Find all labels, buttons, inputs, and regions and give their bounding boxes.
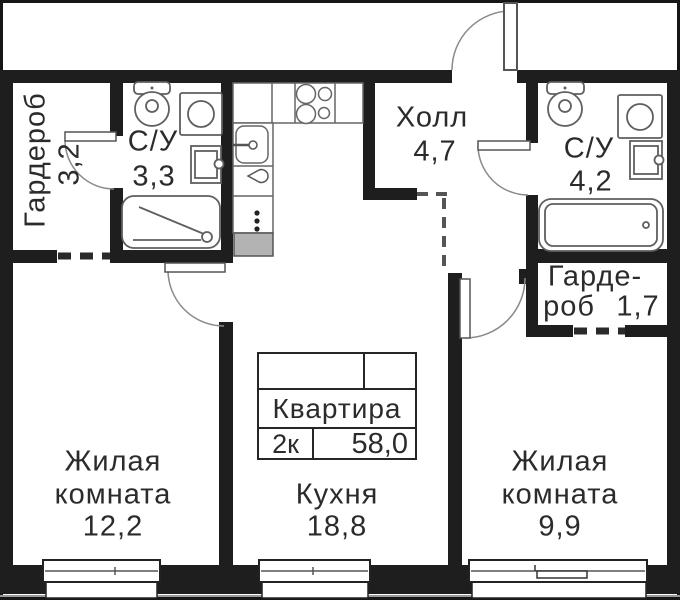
wall-hall-left bbox=[363, 83, 375, 188]
sink-icon bbox=[630, 141, 664, 179]
door-swing-arc bbox=[452, 11, 511, 70]
room-area-bathroom-right: 4,2 bbox=[569, 168, 612, 197]
toilet-icon bbox=[547, 82, 584, 126]
stamp-header-divider bbox=[363, 354, 365, 388]
wall-bath-right-lower bbox=[526, 195, 538, 337]
room-area-living1: 12,2 bbox=[83, 513, 143, 542]
wall-wardrobe-right-bottom-r bbox=[625, 325, 667, 337]
door-swing-arc bbox=[478, 145, 528, 195]
appliance-dots-icon bbox=[254, 210, 259, 231]
wall-wardrobe-left-stub bbox=[13, 250, 57, 263]
room-area-kitchen: 18,8 bbox=[307, 513, 367, 542]
door-leaf bbox=[460, 279, 470, 338]
sink-icon bbox=[191, 146, 224, 183]
toilet-icon bbox=[134, 82, 170, 126]
wall-kitchen-living1 bbox=[219, 322, 233, 565]
living1-door bbox=[165, 263, 225, 326]
wall-door-frame-stub bbox=[519, 269, 538, 284]
window-living1 bbox=[43, 560, 160, 598]
wall-top-right bbox=[517, 70, 680, 83]
room-name-living1-line1: Жилая bbox=[65, 448, 162, 477]
wall-left bbox=[0, 70, 13, 594]
room-name-hall: Холл bbox=[396, 104, 468, 133]
wall-wardrobe-bath-upper bbox=[110, 83, 123, 136]
door-leaf bbox=[504, 3, 517, 70]
room-name-bathroom-left: С/У bbox=[128, 128, 178, 157]
bathtub-icon bbox=[122, 196, 220, 248]
wall-bath-right-upper bbox=[526, 83, 538, 143]
room-name-bathroom-right: С/У bbox=[564, 135, 614, 164]
room-name-wardrobe-right-line1: Гарде- bbox=[548, 263, 642, 292]
door-leaf bbox=[65, 132, 116, 141]
room-area-living2: 9,9 bbox=[538, 513, 581, 542]
room-name-living1-line2: комната bbox=[55, 481, 172, 510]
stamp-values-row: 2к 58,0 bbox=[259, 429, 415, 460]
kitchen-sink-icon bbox=[233, 126, 268, 163]
wall-top-left bbox=[0, 70, 452, 83]
door-leaf bbox=[478, 141, 530, 150]
door-leaf bbox=[165, 263, 225, 272]
room-name-wardrobe-left: Гардероб bbox=[22, 92, 51, 228]
apartment-stamp: Квартира 2к 58,0 bbox=[257, 352, 417, 460]
room-area-bathroom-left: 3,3 bbox=[132, 163, 175, 192]
wall-wardrobe-bath-lower bbox=[110, 188, 123, 250]
window-kitchen bbox=[259, 560, 370, 598]
stamp-total-area: 58,0 bbox=[314, 429, 415, 460]
room-name-kitchen: Кухня bbox=[296, 481, 379, 510]
washing-machine-icon bbox=[180, 93, 222, 135]
bathroom-right-door bbox=[478, 141, 530, 195]
door-swing-arc bbox=[465, 278, 525, 338]
room-name-living2-line2: комната bbox=[502, 481, 619, 510]
stamp-room-count: 2к bbox=[259, 429, 314, 460]
windows bbox=[43, 560, 647, 598]
room-area-wardrobe-left: 3,2 bbox=[56, 142, 85, 185]
stamp-title: Квартира bbox=[259, 390, 415, 429]
window-living2 bbox=[469, 560, 647, 598]
living2-door bbox=[460, 278, 525, 338]
room-area-wardrobe-right: 1,7 bbox=[616, 293, 659, 322]
stamp-header-row bbox=[259, 354, 415, 390]
wall-hall-foot bbox=[363, 188, 417, 200]
room-area-hall: 4,7 bbox=[413, 138, 456, 167]
wall-bath-left-bottom bbox=[110, 250, 233, 263]
door-swing-arc bbox=[168, 270, 224, 326]
wall-wardrobe-right-bottom-l bbox=[526, 325, 573, 337]
entry-door bbox=[452, 3, 517, 70]
duct-shaft bbox=[234, 233, 273, 256]
room-name-wardrobe-right-line2: роб bbox=[543, 293, 595, 322]
kitchen-fixtures bbox=[233, 83, 363, 256]
bathtub-icon bbox=[539, 199, 663, 251]
floor-plan: Гардероб 3,2 С/У 3,3 Холл 4,7 С/У 4,2 Га… bbox=[0, 0, 680, 600]
washing-machine-icon bbox=[618, 95, 662, 138]
wall-right bbox=[667, 70, 680, 594]
balcony-door-mark bbox=[537, 571, 587, 578]
room-name-living2-line1: Жилая bbox=[512, 448, 609, 477]
